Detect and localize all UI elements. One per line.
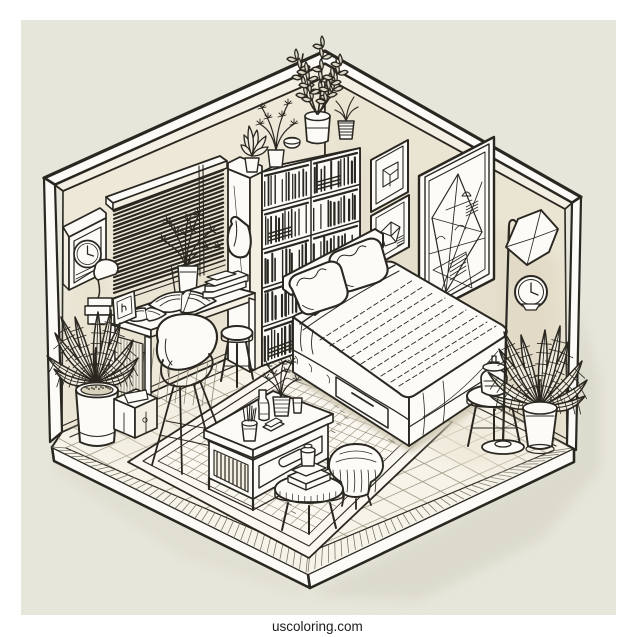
svg-text:uscoloring.com: uscoloring.com [272,619,363,634]
